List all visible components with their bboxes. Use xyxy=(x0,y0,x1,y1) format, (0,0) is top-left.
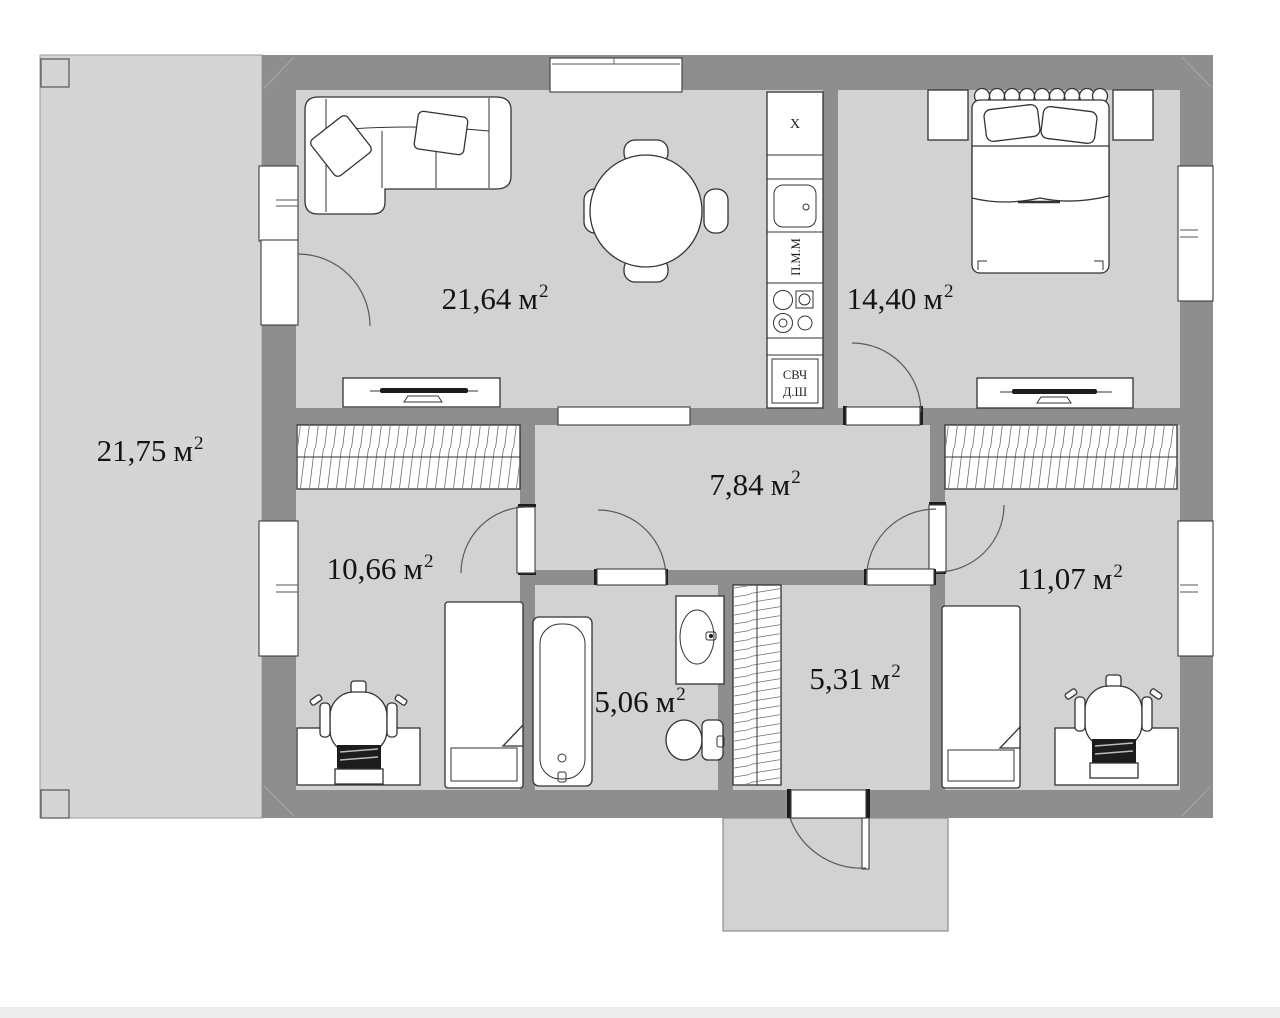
toilet xyxy=(666,720,724,760)
wardrobe-child1 xyxy=(297,425,520,489)
fridge-label: X xyxy=(790,117,800,132)
window-bedroom-right xyxy=(1178,166,1213,301)
floor-plan-drawing: X П.М.М СВЧ Д.Ш xyxy=(0,0,1280,1018)
dining-chair xyxy=(704,189,728,233)
entrance-porch xyxy=(723,818,948,931)
bed-single-left xyxy=(445,602,523,788)
bathtub xyxy=(533,617,592,786)
blanket xyxy=(972,146,1109,202)
bathroom-sink xyxy=(676,596,724,684)
wall-opening-living-hall xyxy=(558,407,690,425)
tv-stand-living xyxy=(343,378,500,407)
room-label-child1: 10,66м2 xyxy=(327,551,434,586)
tv-icon xyxy=(1012,389,1097,394)
nightstand-right xyxy=(1113,90,1153,140)
svg-text:Д.Ш: Д.Ш xyxy=(783,385,808,399)
room-label-entry: 5,31м2 xyxy=(809,661,900,696)
window-child1-left xyxy=(259,521,298,656)
room-label-terrace: 21,75м2 xyxy=(97,433,204,468)
page-bottom-strip xyxy=(0,1007,1280,1018)
bed-single-right xyxy=(942,606,1020,788)
chair-seat xyxy=(330,692,387,754)
room-label-bath: 5,06м2 xyxy=(594,684,685,719)
nightstand-left xyxy=(928,90,968,140)
room-label-bedroom: 14,40м2 xyxy=(847,281,954,316)
dishwasher-label: П.М.М xyxy=(789,238,803,276)
headrest xyxy=(1106,675,1121,687)
tv-icon xyxy=(380,388,468,393)
pillow xyxy=(983,104,1040,142)
kitchen-unit: X П.М.М СВЧ Д.Ш xyxy=(767,92,823,408)
svg-text:СВЧ: СВЧ xyxy=(783,368,807,382)
room-label-child2: 11,07м2 xyxy=(1017,561,1123,596)
wardrobe-child2 xyxy=(945,425,1177,489)
bed-double xyxy=(972,89,1109,274)
room-label-living: 21,64м2 xyxy=(442,281,549,316)
window-top xyxy=(550,58,682,92)
room-label-hall: 7,84м2 xyxy=(709,467,800,502)
window-child2-right xyxy=(1178,521,1213,656)
sofa-pillow xyxy=(414,111,469,156)
wardrobe-entry xyxy=(733,585,781,785)
floor-plan: X П.М.М СВЧ Д.Ш xyxy=(0,0,1280,1018)
tv-stand-bedroom xyxy=(977,378,1133,408)
chair-seat xyxy=(1085,686,1142,748)
headrest xyxy=(351,681,366,693)
window-living-left xyxy=(259,166,298,241)
pillow xyxy=(1040,106,1097,144)
